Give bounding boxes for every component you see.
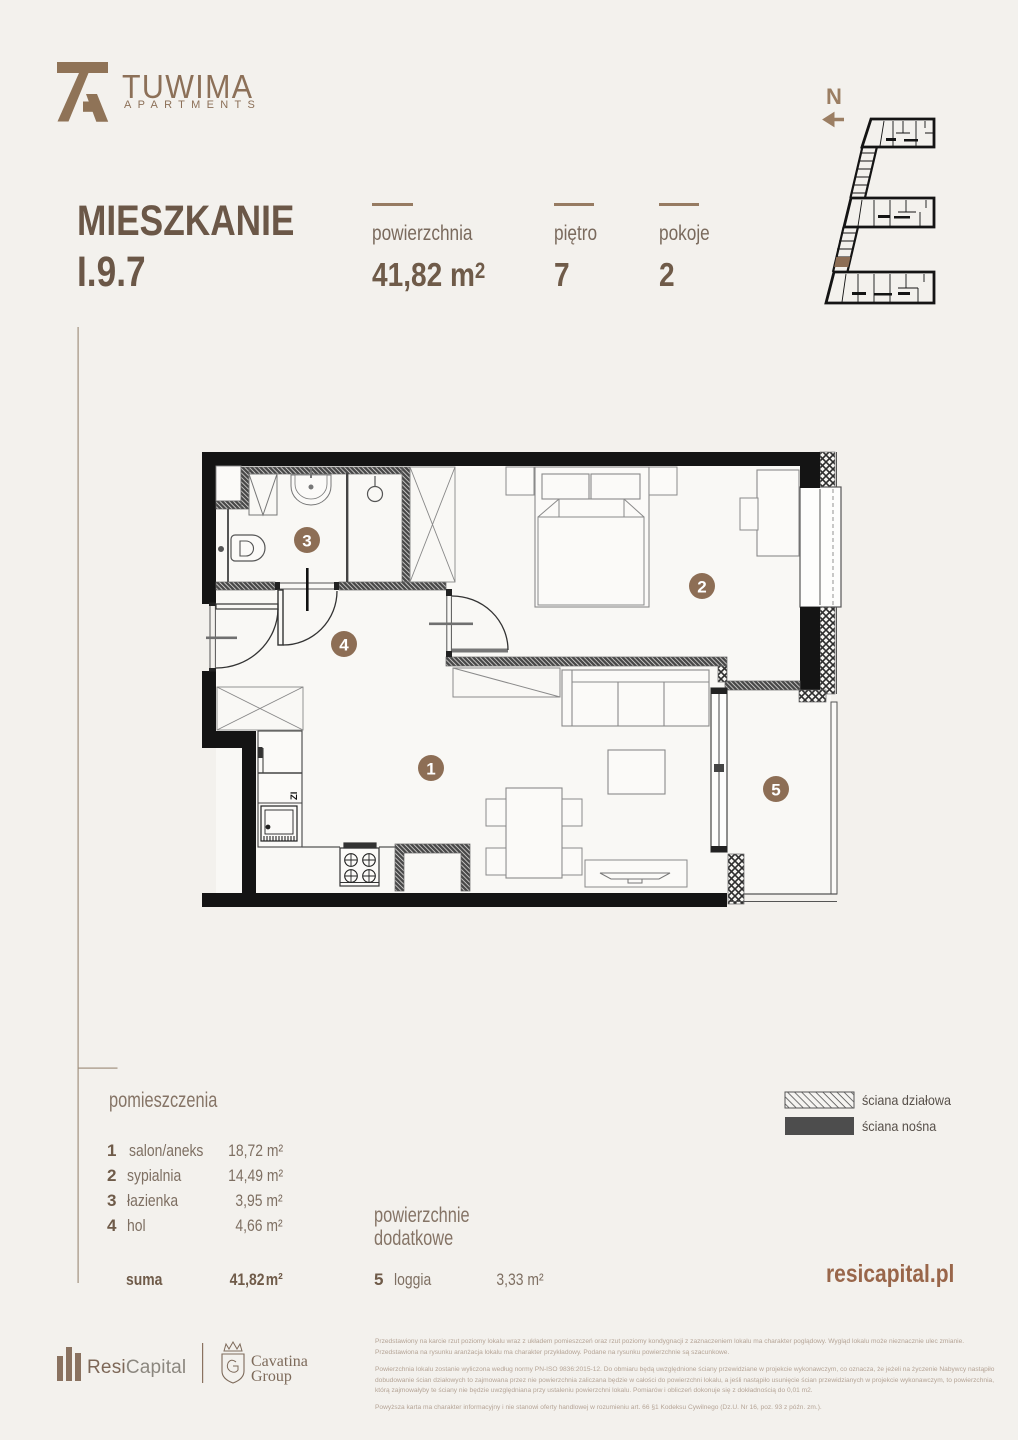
svg-text:3: 3 <box>302 532 311 551</box>
svg-text:Zl: Zl <box>289 792 300 800</box>
svg-text:1: 1 <box>426 760 435 779</box>
svg-text:4: 4 <box>339 636 349 655</box>
svg-text:5: 5 <box>771 781 780 800</box>
svg-text:2: 2 <box>697 578 706 597</box>
